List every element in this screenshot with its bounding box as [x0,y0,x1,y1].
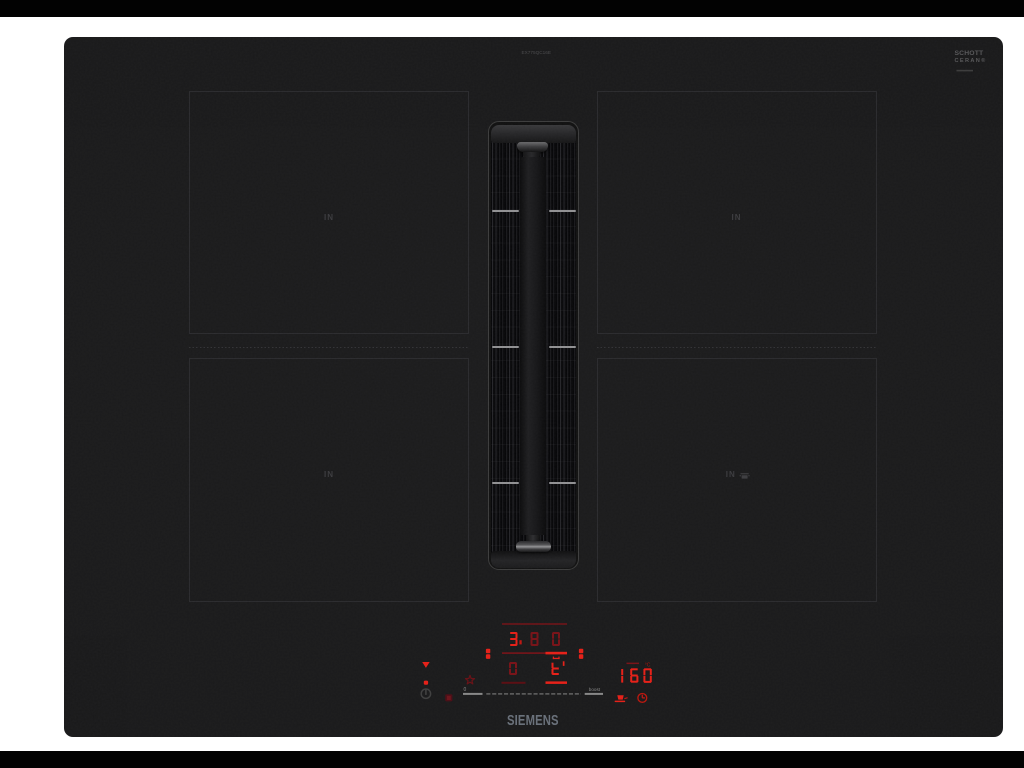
svg-text:0: 0 [464,687,467,693]
svg-text:°C: °C [645,662,651,668]
svg-text:boost: boost [589,687,601,692]
